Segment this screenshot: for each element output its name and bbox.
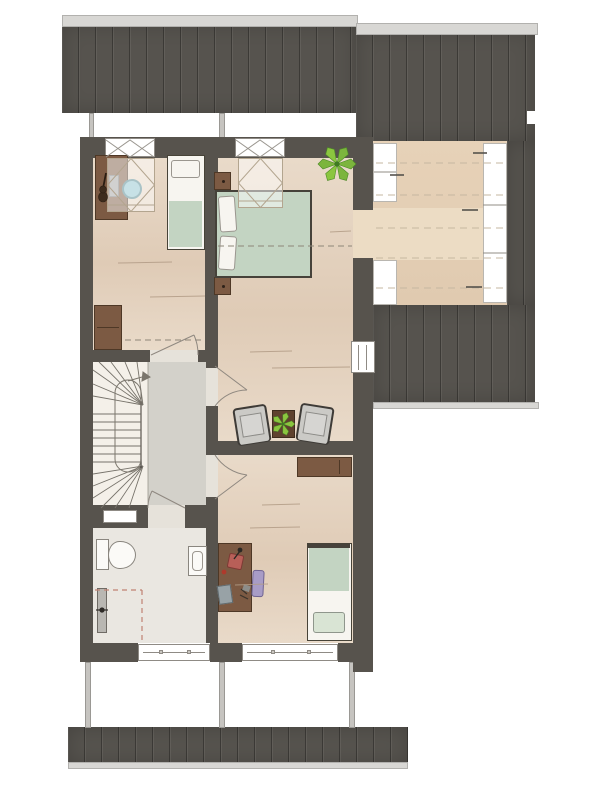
support-post-bottom-2 <box>219 662 225 728</box>
nightstand-2-knob <box>222 285 225 288</box>
single-bed-2-pillow <box>313 612 345 633</box>
east-window-mullion <box>358 345 359 370</box>
facade-window-1-handle <box>159 650 163 654</box>
terrace-deck-light-band <box>373 208 483 260</box>
facade-window-2 <box>242 644 338 661</box>
wall-landing-east-b <box>206 406 218 443</box>
sideboard <box>297 457 352 477</box>
facade-window-2-handle <box>271 650 275 654</box>
single-bed-1-duvet <box>169 201 202 247</box>
single-bed-1-pillow <box>171 160 200 178</box>
terrace-passage-opening <box>353 210 373 258</box>
terrace-glazing-right <box>483 143 507 303</box>
stool-teal <box>122 179 142 199</box>
east-window-frame-line <box>366 345 367 370</box>
facade-window-2-handle2 <box>307 650 311 654</box>
roof-below-terrace <box>373 305 535 402</box>
terrace-glazing-left-top <box>373 143 397 202</box>
wall-niche <box>103 510 137 523</box>
double-bed-pillow-2 <box>218 235 237 270</box>
tablet-on-desk <box>109 175 119 197</box>
facade-window-1-handle2 <box>187 650 191 654</box>
eaves-strip-right <box>373 402 539 409</box>
wall-bottom-pier-2 <box>210 643 242 662</box>
single-bed-1 <box>167 155 205 250</box>
roof-top-right <box>356 31 535 141</box>
door-opening-master <box>206 368 218 406</box>
wall-bottom-pier-1 <box>80 643 138 662</box>
wall-bedroom1-south-b <box>198 350 218 362</box>
wall-left <box>80 158 93 662</box>
roof-edge-notch <box>527 111 538 124</box>
ridge-strip-top-left <box>62 15 358 27</box>
door-opening-bedroom1 <box>150 350 198 362</box>
wall-bedroom1-south-a <box>93 350 150 362</box>
dresser-bedroom1 <box>94 305 122 350</box>
ridge-strip-top-right <box>356 23 538 35</box>
washbasin-bowl <box>192 551 203 571</box>
nightstand-1-knob <box>222 180 225 183</box>
armchair-1 <box>232 404 272 447</box>
side-table <box>272 410 295 438</box>
roof-bottom <box>68 727 408 764</box>
wall-bathroom-north-b <box>185 505 218 528</box>
single-bed-2-duvet <box>309 548 349 591</box>
roof-top-left <box>62 25 356 113</box>
armchair-1-cushion <box>239 412 264 437</box>
support-post-top-1 <box>89 113 94 139</box>
wall-bottom-pier-3 <box>338 643 373 662</box>
washbasin <box>188 546 207 576</box>
floor-plan-canvas <box>0 0 600 800</box>
terrace-glazing-left-bottom <box>373 260 397 305</box>
desk-chair-purple <box>251 570 264 598</box>
wall-master-south <box>206 441 353 455</box>
nightstand-1 <box>214 172 231 190</box>
laptop <box>217 584 234 605</box>
door-opening-bedroom-bottom <box>206 455 218 497</box>
sideboard-divider <box>339 460 340 474</box>
radiator <box>97 588 107 633</box>
floor-staircase <box>93 362 148 508</box>
facade-window-2-line <box>247 652 333 653</box>
dresser-divider <box>97 327 119 328</box>
support-post-top-2 <box>219 113 225 139</box>
armchair-2 <box>295 403 335 446</box>
roof-right-of-terrace <box>507 141 535 305</box>
armchair-2-cushion <box>302 411 327 436</box>
eaves-strip-bottom <box>68 762 408 769</box>
facade-window-1 <box>138 644 210 661</box>
double-bed-pillow-1 <box>218 195 237 232</box>
door-opening-bathroom <box>148 505 185 528</box>
dormer-window-2 <box>235 138 285 157</box>
single-bed-2 <box>307 543 352 641</box>
east-window <box>351 341 375 373</box>
floor-hallway-landing <box>148 362 206 505</box>
facade-window-1-line <box>143 652 205 653</box>
desk-lamp-shade <box>227 553 245 571</box>
support-post-bottom-1 <box>85 662 91 728</box>
nightstand-2 <box>214 277 231 295</box>
double-bed <box>215 190 312 278</box>
